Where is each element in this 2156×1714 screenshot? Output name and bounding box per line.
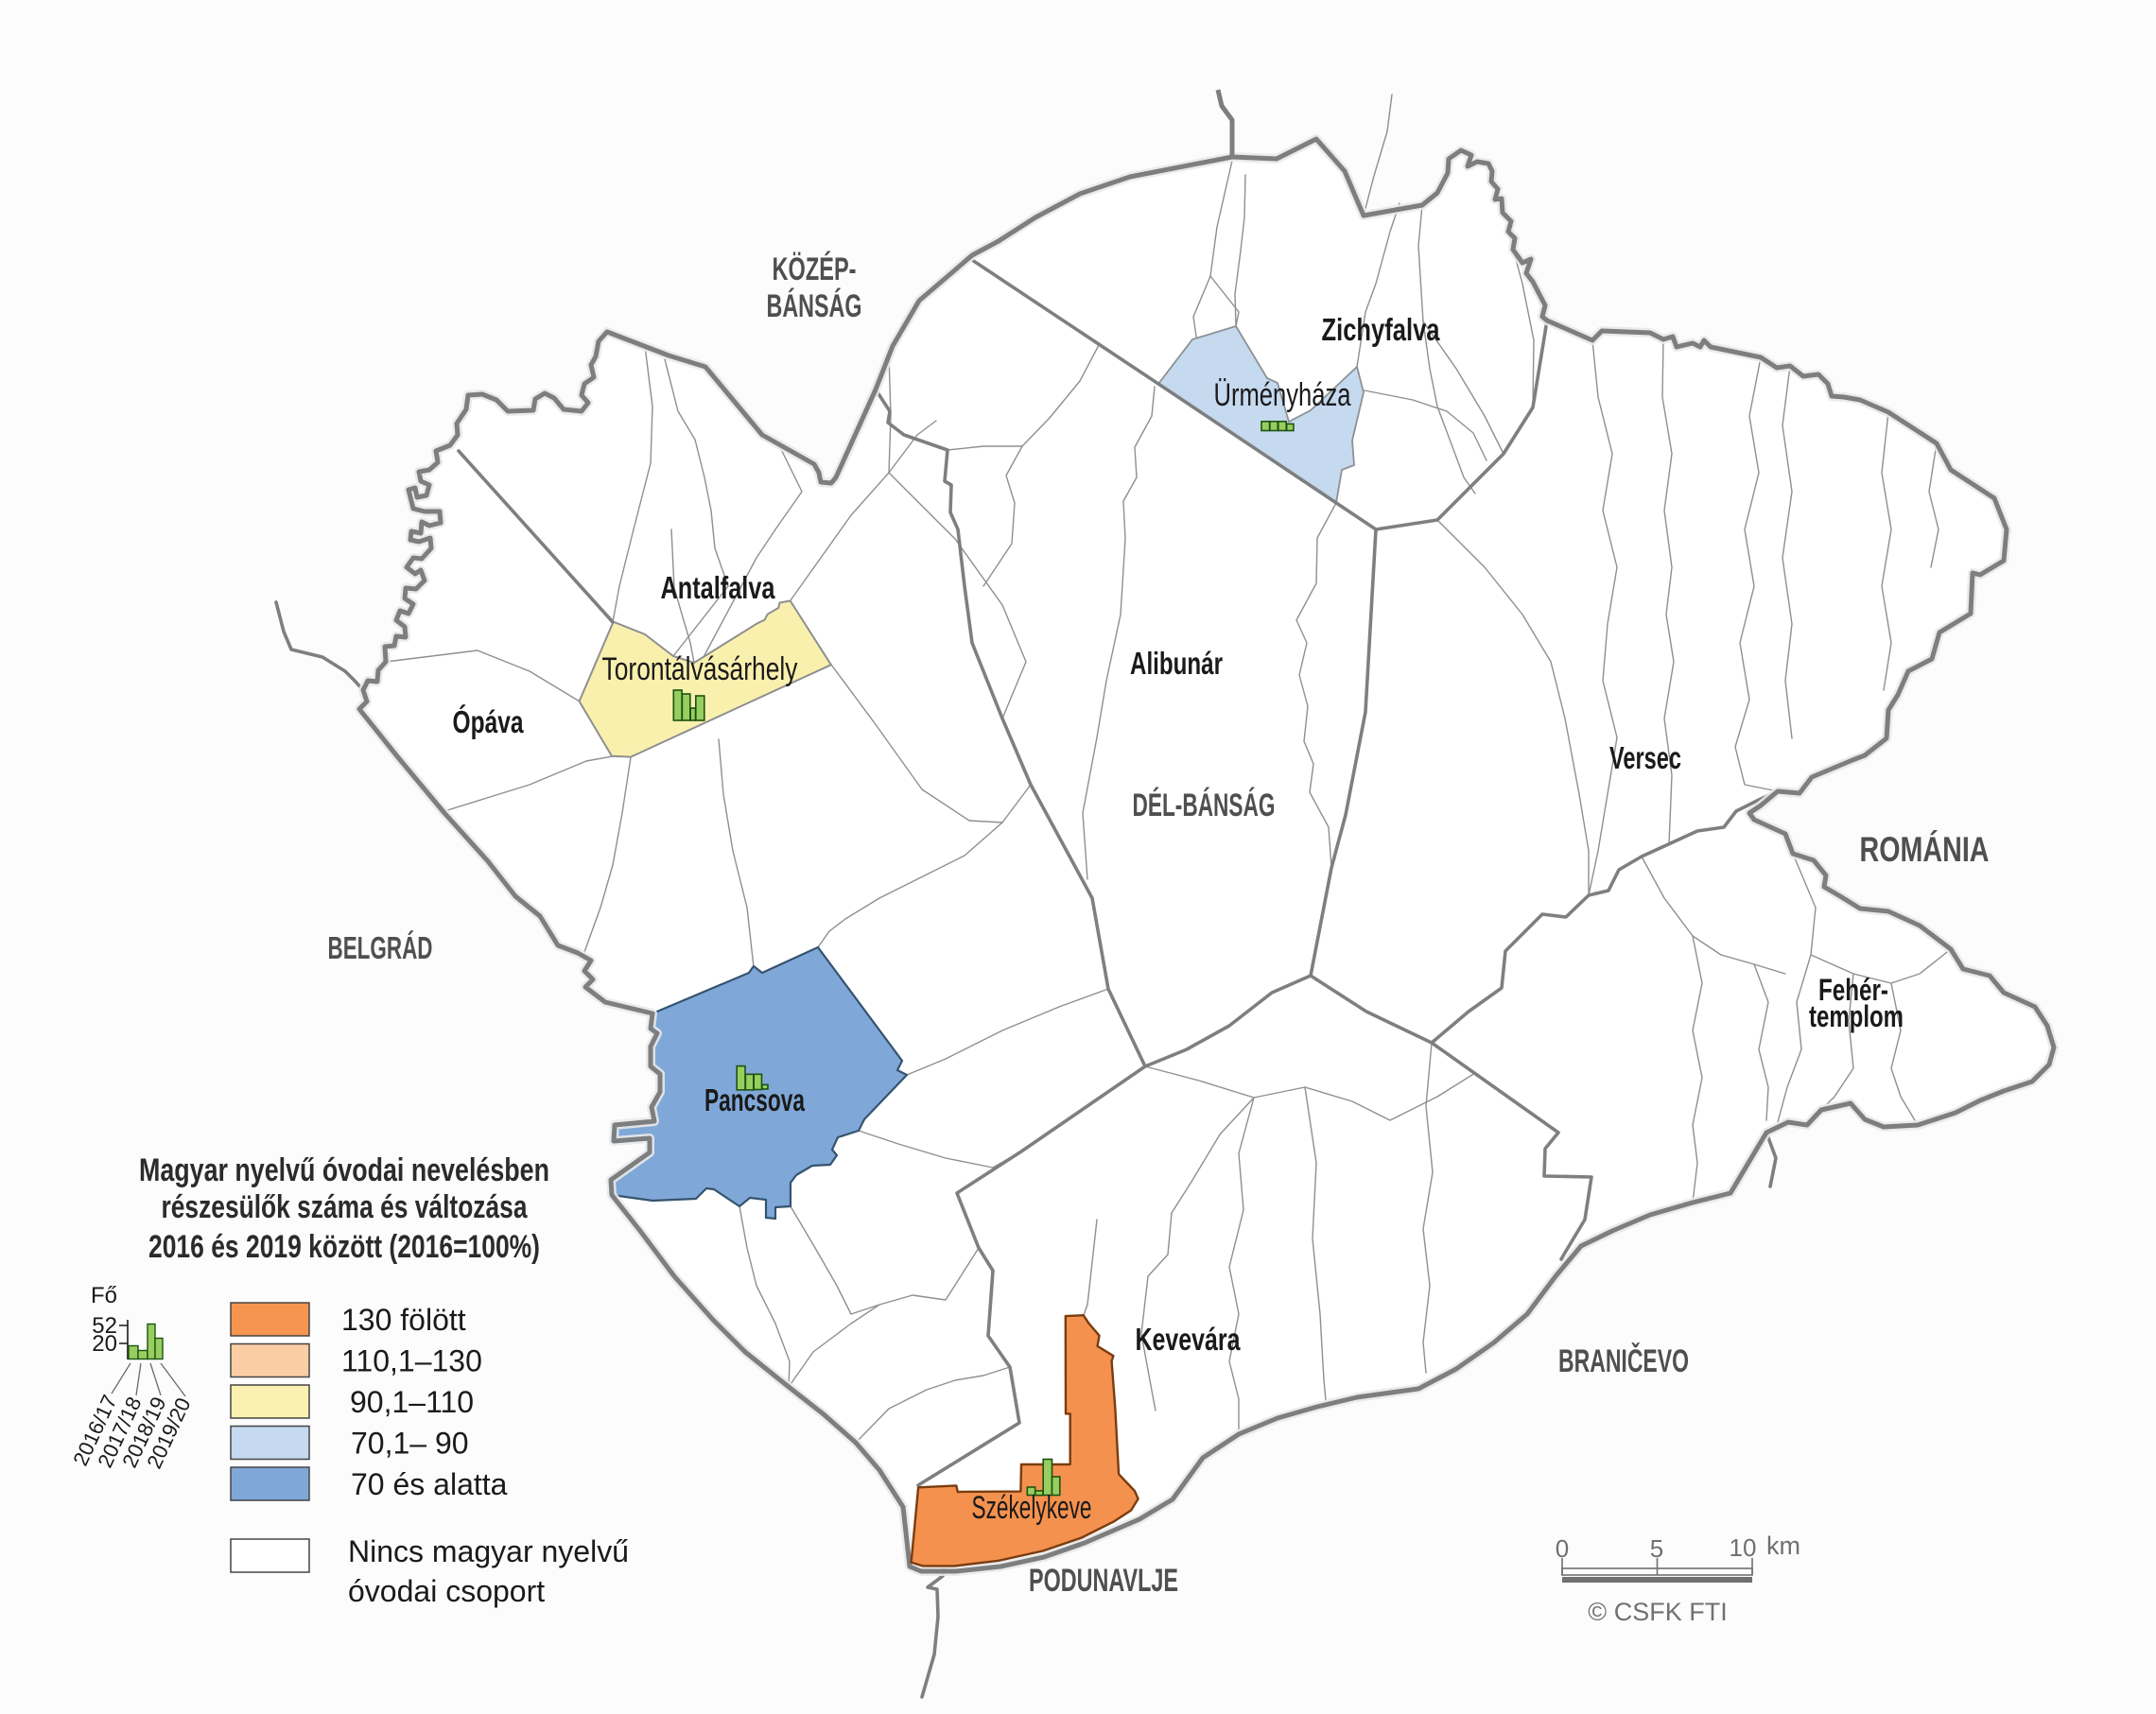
svg-text:5: 5	[1650, 1534, 1663, 1563]
svg-text:Zichyfalva: Zichyfalva	[1322, 312, 1440, 347]
svg-text:130 fölött: 130 fölött	[341, 1303, 466, 1337]
svg-text:ROMÁNIA: ROMÁNIA	[1860, 830, 1990, 869]
svg-text:BRANIČEVO: BRANIČEVO	[1558, 1342, 1689, 1379]
svg-text:Kevevára: Kevevára	[1136, 1322, 1241, 1357]
svg-text:Ópáva: Ópáva	[453, 704, 524, 739]
svg-text:BÁNSÁG: BÁNSÁG	[767, 288, 862, 324]
svg-text:DÉL-BÁNSÁG: DÉL-BÁNSÁG	[1133, 788, 1276, 823]
svg-text:90,1–110: 90,1–110	[350, 1385, 474, 1419]
svg-text:70 és alatta: 70 és alatta	[351, 1467, 508, 1501]
svg-text:Versec: Versec	[1609, 740, 1681, 775]
svg-text:70,1– 90: 70,1– 90	[351, 1427, 469, 1461]
svg-text:10: 10	[1730, 1533, 1757, 1562]
svg-text:Pancsova: Pancsova	[704, 1082, 805, 1117]
svg-text:Magyar nyelvű óvodai nevelésbe: Magyar nyelvű óvodai nevelésben	[139, 1152, 549, 1188]
svg-text:Fő: Fő	[91, 1283, 117, 1308]
svg-text:Antalfalva: Antalfalva	[661, 570, 775, 605]
svg-text:templom: templom	[1809, 999, 1904, 1033]
svg-text:részesülők száma és változása: részesülők száma és változása	[162, 1189, 529, 1225]
svg-text:© CSFK FTI: © CSFK FTI	[1588, 1598, 1727, 1626]
svg-text:PODUNAVLJE: PODUNAVLJE	[1029, 1563, 1178, 1599]
svg-text:Ürményháza: Ürményháza	[1214, 377, 1351, 413]
svg-text:0: 0	[1556, 1534, 1569, 1563]
svg-text:Alibunár: Alibunár	[1130, 646, 1223, 681]
svg-text:km: km	[1766, 1532, 1800, 1560]
svg-text:110,1–130: 110,1–130	[341, 1344, 482, 1378]
svg-text:KÖZÉP-: KÖZÉP-	[773, 251, 857, 287]
svg-text:2016 és 2019 között (2016=100%: 2016 és 2019 között (2016=100%)	[148, 1229, 540, 1265]
svg-text:BELGRÁD: BELGRÁD	[328, 930, 433, 965]
svg-text:Székelykeve: Székelykeve	[972, 1490, 1092, 1526]
svg-text:óvodai csoport: óvodai csoport	[348, 1574, 545, 1608]
svg-text:Torontálvásárhely: Torontálvásárhely	[602, 651, 798, 687]
svg-text:Nincs magyar nyelvű: Nincs magyar nyelvű	[348, 1534, 629, 1568]
svg-text:20: 20	[92, 1331, 117, 1357]
